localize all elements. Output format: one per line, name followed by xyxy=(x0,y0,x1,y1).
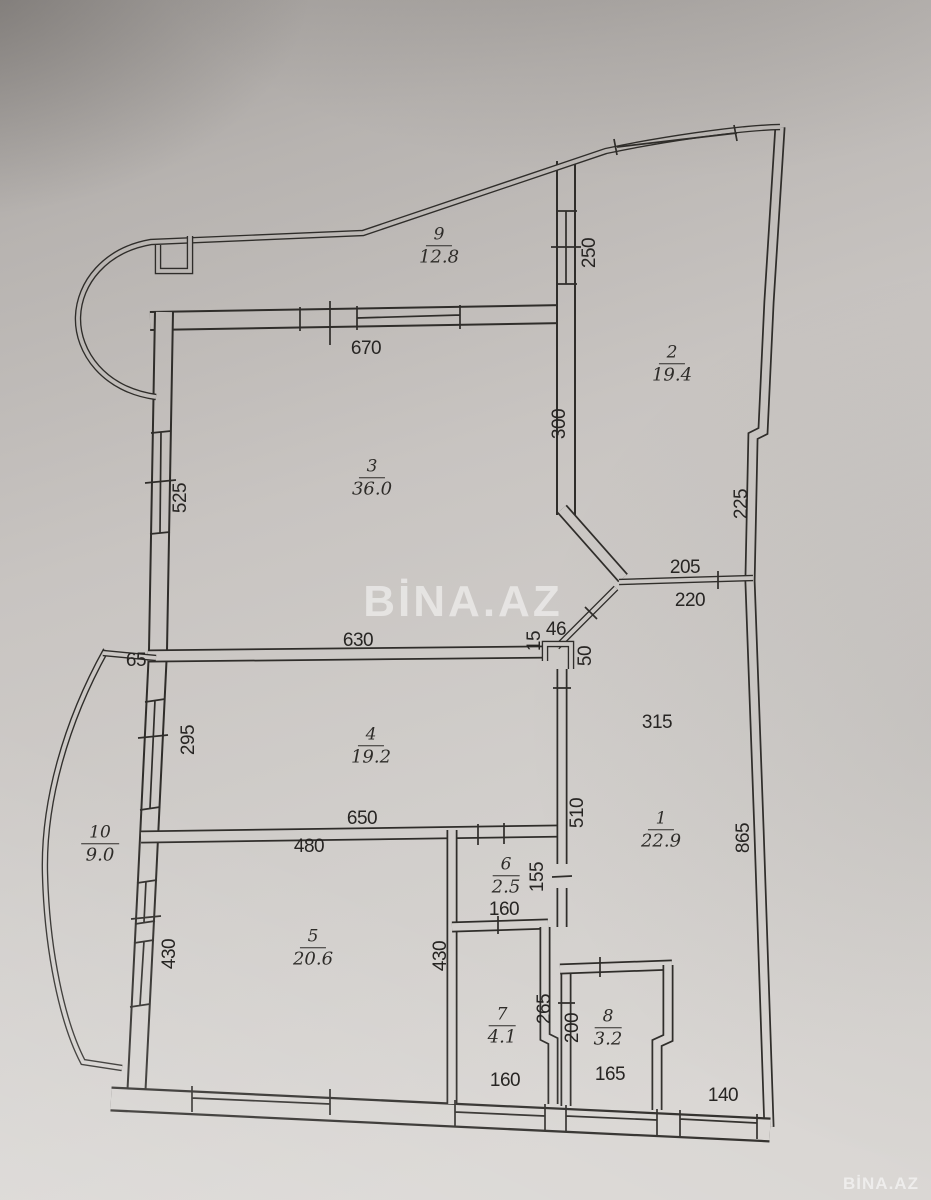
room-number: 7 xyxy=(489,1005,516,1026)
room-number: 3 xyxy=(359,457,386,478)
dim-label-295: 295 xyxy=(178,725,200,755)
dim-label-200: 200 xyxy=(562,1013,584,1043)
dim-label-315: 315 xyxy=(642,712,672,734)
dim-label-525: 525 xyxy=(170,483,192,513)
room-label-2: 2 19.4 xyxy=(652,343,692,384)
dim-label-265: 265 xyxy=(534,994,556,1024)
room-label-9: 9 12.8 xyxy=(419,225,459,266)
dim-label-65: 65 xyxy=(126,650,146,672)
room-area: 12.8 xyxy=(419,246,459,267)
dim-label-630: 630 xyxy=(343,630,373,652)
dim-label-480: 480 xyxy=(294,836,324,858)
dim-label-140: 140 xyxy=(708,1085,738,1107)
dim-label-220: 220 xyxy=(675,590,705,612)
room-label-7: 7 4.1 xyxy=(488,1005,517,1046)
room-number: 6 xyxy=(493,855,520,876)
dim-label-225: 225 xyxy=(731,489,753,519)
room-label-10: 10 9.0 xyxy=(81,823,119,864)
room-label-3: 3 36.0 xyxy=(352,457,392,498)
room-number: 4 xyxy=(358,725,385,746)
room-area: 19.2 xyxy=(351,746,391,767)
floor-plan-photo: BİNA.AZ BİNA.AZ 9 12.8 2 19.4 3 36.0 4 1… xyxy=(0,0,931,1200)
room-number: 8 xyxy=(595,1007,622,1028)
room-label-4: 4 19.2 xyxy=(351,725,391,766)
dim-label-205: 205 xyxy=(670,557,700,579)
room-number: 1 xyxy=(648,809,675,830)
room-area: 19.4 xyxy=(652,364,692,385)
room-label-1: 1 22.9 xyxy=(641,809,681,850)
room-area: 3.2 xyxy=(594,1028,623,1049)
dim-label-46: 46 xyxy=(546,619,566,641)
room-area: 22.9 xyxy=(641,830,681,851)
dim-label-510: 510 xyxy=(567,798,589,828)
room-area: 36.0 xyxy=(352,478,392,499)
room-area: 20.6 xyxy=(293,948,333,969)
dim-label-155: 155 xyxy=(527,862,549,892)
room-label-5: 5 20.6 xyxy=(293,927,333,968)
room-label-8: 8 3.2 xyxy=(594,1007,623,1048)
room-number: 10 xyxy=(81,823,119,844)
dim-label-650: 650 xyxy=(347,808,377,830)
watermark-center: BİNA.AZ xyxy=(363,577,562,627)
dim-label-865: 865 xyxy=(733,823,755,853)
watermark-corner: BİNA.AZ xyxy=(843,1174,919,1194)
dim-label-160-mid: 160 xyxy=(489,899,519,921)
dim-label-250: 250 xyxy=(579,238,601,268)
dim-label-300: 300 xyxy=(549,409,571,439)
room-label-6: 6 2.5 xyxy=(492,855,521,896)
dim-label-160-bottom: 160 xyxy=(490,1070,520,1092)
dim-label-50: 50 xyxy=(575,646,597,666)
room-area: 4.1 xyxy=(488,1026,517,1047)
room-number: 5 xyxy=(300,927,327,948)
room-area: 9.0 xyxy=(81,844,119,865)
dim-label-430-left: 430 xyxy=(159,939,181,969)
room-number: 2 xyxy=(659,343,686,364)
dim-label-165: 165 xyxy=(595,1064,625,1086)
room-area: 2.5 xyxy=(492,876,521,897)
dim-label-670: 670 xyxy=(351,338,381,360)
room-number: 9 xyxy=(426,225,453,246)
dim-label-15: 15 xyxy=(524,631,546,651)
dim-label-430-mid: 430 xyxy=(430,941,452,971)
